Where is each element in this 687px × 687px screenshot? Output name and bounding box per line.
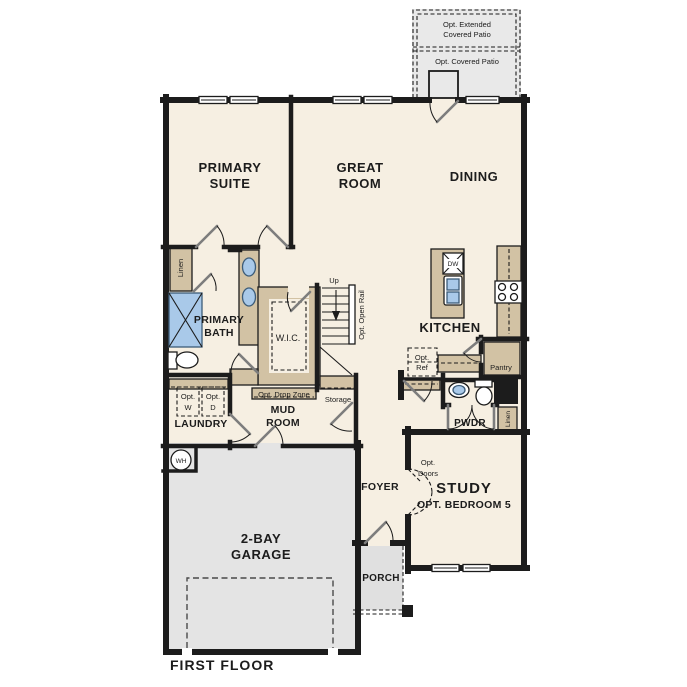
label-mud-room-1: MUD bbox=[271, 404, 296, 416]
label-foyer: FOYER bbox=[361, 481, 399, 493]
label-mud-room-2: ROOM bbox=[266, 417, 300, 429]
island-sink bbox=[444, 276, 462, 305]
powder-sink bbox=[449, 383, 469, 398]
understair-storage-band bbox=[320, 376, 356, 389]
bath-toilet bbox=[168, 352, 198, 369]
water-heater: WH bbox=[171, 450, 191, 470]
window bbox=[199, 97, 227, 104]
floor-plan-page: Opt. Extended Covered Patio Opt. Covered… bbox=[0, 0, 687, 687]
vanity-sink bbox=[243, 288, 256, 306]
vanity-sink bbox=[243, 258, 256, 276]
label-garage-2: GARAGE bbox=[231, 547, 291, 562]
label-primary-bath-2: BATH bbox=[204, 327, 234, 339]
label-dining: DINING bbox=[450, 169, 499, 184]
bath-south-band bbox=[230, 369, 258, 385]
label-storage: Storage bbox=[325, 395, 351, 404]
label-wic: W.I.C. bbox=[276, 333, 301, 343]
label-laundry: LAUNDRY bbox=[174, 418, 227, 430]
porch-column bbox=[402, 605, 413, 617]
label-porch: PORCH bbox=[362, 573, 400, 584]
chase-solid bbox=[494, 377, 518, 404]
label-opt-doors-2: Doors bbox=[418, 469, 438, 478]
stove bbox=[495, 281, 522, 303]
label-pantry: Pantry bbox=[490, 363, 512, 372]
label-opt-d-2: D bbox=[210, 403, 216, 412]
label-primary-bath-1: PRIMARY bbox=[194, 314, 244, 326]
window bbox=[364, 97, 392, 104]
label-garage-1: 2-BAY bbox=[241, 531, 281, 546]
garage-door-jamb bbox=[328, 648, 338, 656]
label-study: STUDY bbox=[436, 480, 492, 497]
label-study-sub: OPT. BEDROOM 5 bbox=[417, 499, 511, 511]
plan-title: FIRST FLOOR bbox=[170, 657, 274, 673]
label-up: Up bbox=[329, 276, 339, 285]
label-kitchen: KITCHEN bbox=[419, 320, 480, 335]
label-dw: DW bbox=[448, 261, 460, 268]
label-opt-drop-zone: Opt. Drop Zone bbox=[258, 390, 310, 399]
label-wh: WH bbox=[176, 458, 187, 465]
label-great-room-1: GREAT bbox=[336, 160, 383, 175]
label-opt-d-1: Opt. bbox=[206, 392, 220, 401]
label-opt-ref-2: Ref bbox=[416, 363, 429, 372]
floor-plan-drawing: Opt. Extended Covered Patio Opt. Covered… bbox=[0, 0, 687, 687]
label-opt-extended-patio-1: Opt. Extended bbox=[443, 20, 491, 29]
label-great-room-2: ROOM bbox=[339, 176, 381, 191]
label-opt-w-2: W bbox=[184, 403, 192, 412]
label-opt-open-rail: Opt. Open Rail bbox=[357, 290, 366, 340]
label-linen-hall: Linen bbox=[505, 411, 512, 427]
label-pwdr: PWDR bbox=[454, 418, 486, 429]
dishwasher: DW bbox=[443, 253, 463, 274]
powder-toilet bbox=[475, 380, 492, 405]
window bbox=[432, 565, 459, 572]
label-opt-ref-1: Opt. bbox=[415, 353, 429, 362]
label-primary-suite-2: SUITE bbox=[210, 176, 251, 191]
label-opt-extended-patio-2: Covered Patio bbox=[443, 30, 491, 39]
label-opt-doors-1: Opt. bbox=[421, 458, 435, 467]
label-opt-covered-patio: Opt. Covered Patio bbox=[435, 57, 499, 66]
stair-rail bbox=[349, 285, 355, 344]
patio-stoop bbox=[429, 71, 458, 98]
label-opt-w-1: Opt. bbox=[181, 392, 195, 401]
window bbox=[466, 97, 499, 104]
window bbox=[230, 97, 258, 104]
window bbox=[333, 97, 361, 104]
garage-door-jamb bbox=[182, 648, 192, 656]
label-linen-bath: Linen bbox=[176, 259, 185, 277]
label-primary-suite-1: PRIMARY bbox=[199, 160, 262, 175]
window bbox=[463, 565, 490, 572]
